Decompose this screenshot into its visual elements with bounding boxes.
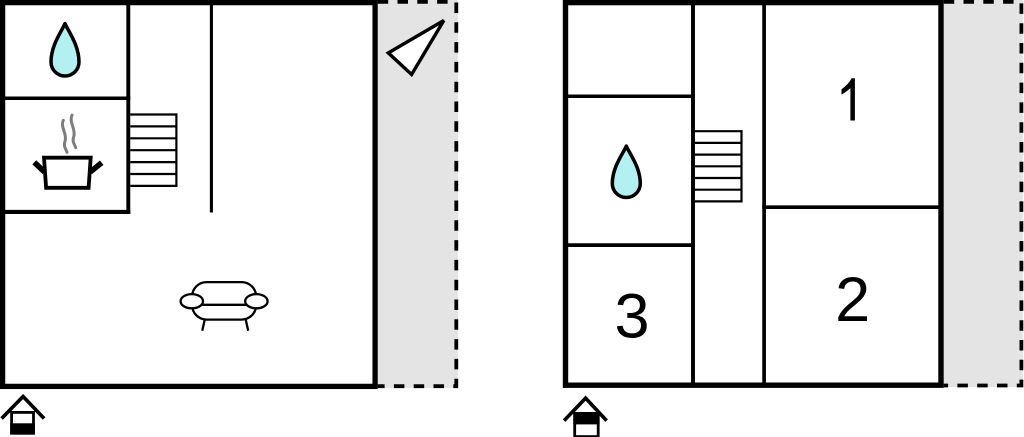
svg-text:3: 3 (614, 282, 649, 352)
svg-text:2: 2 (835, 265, 870, 335)
